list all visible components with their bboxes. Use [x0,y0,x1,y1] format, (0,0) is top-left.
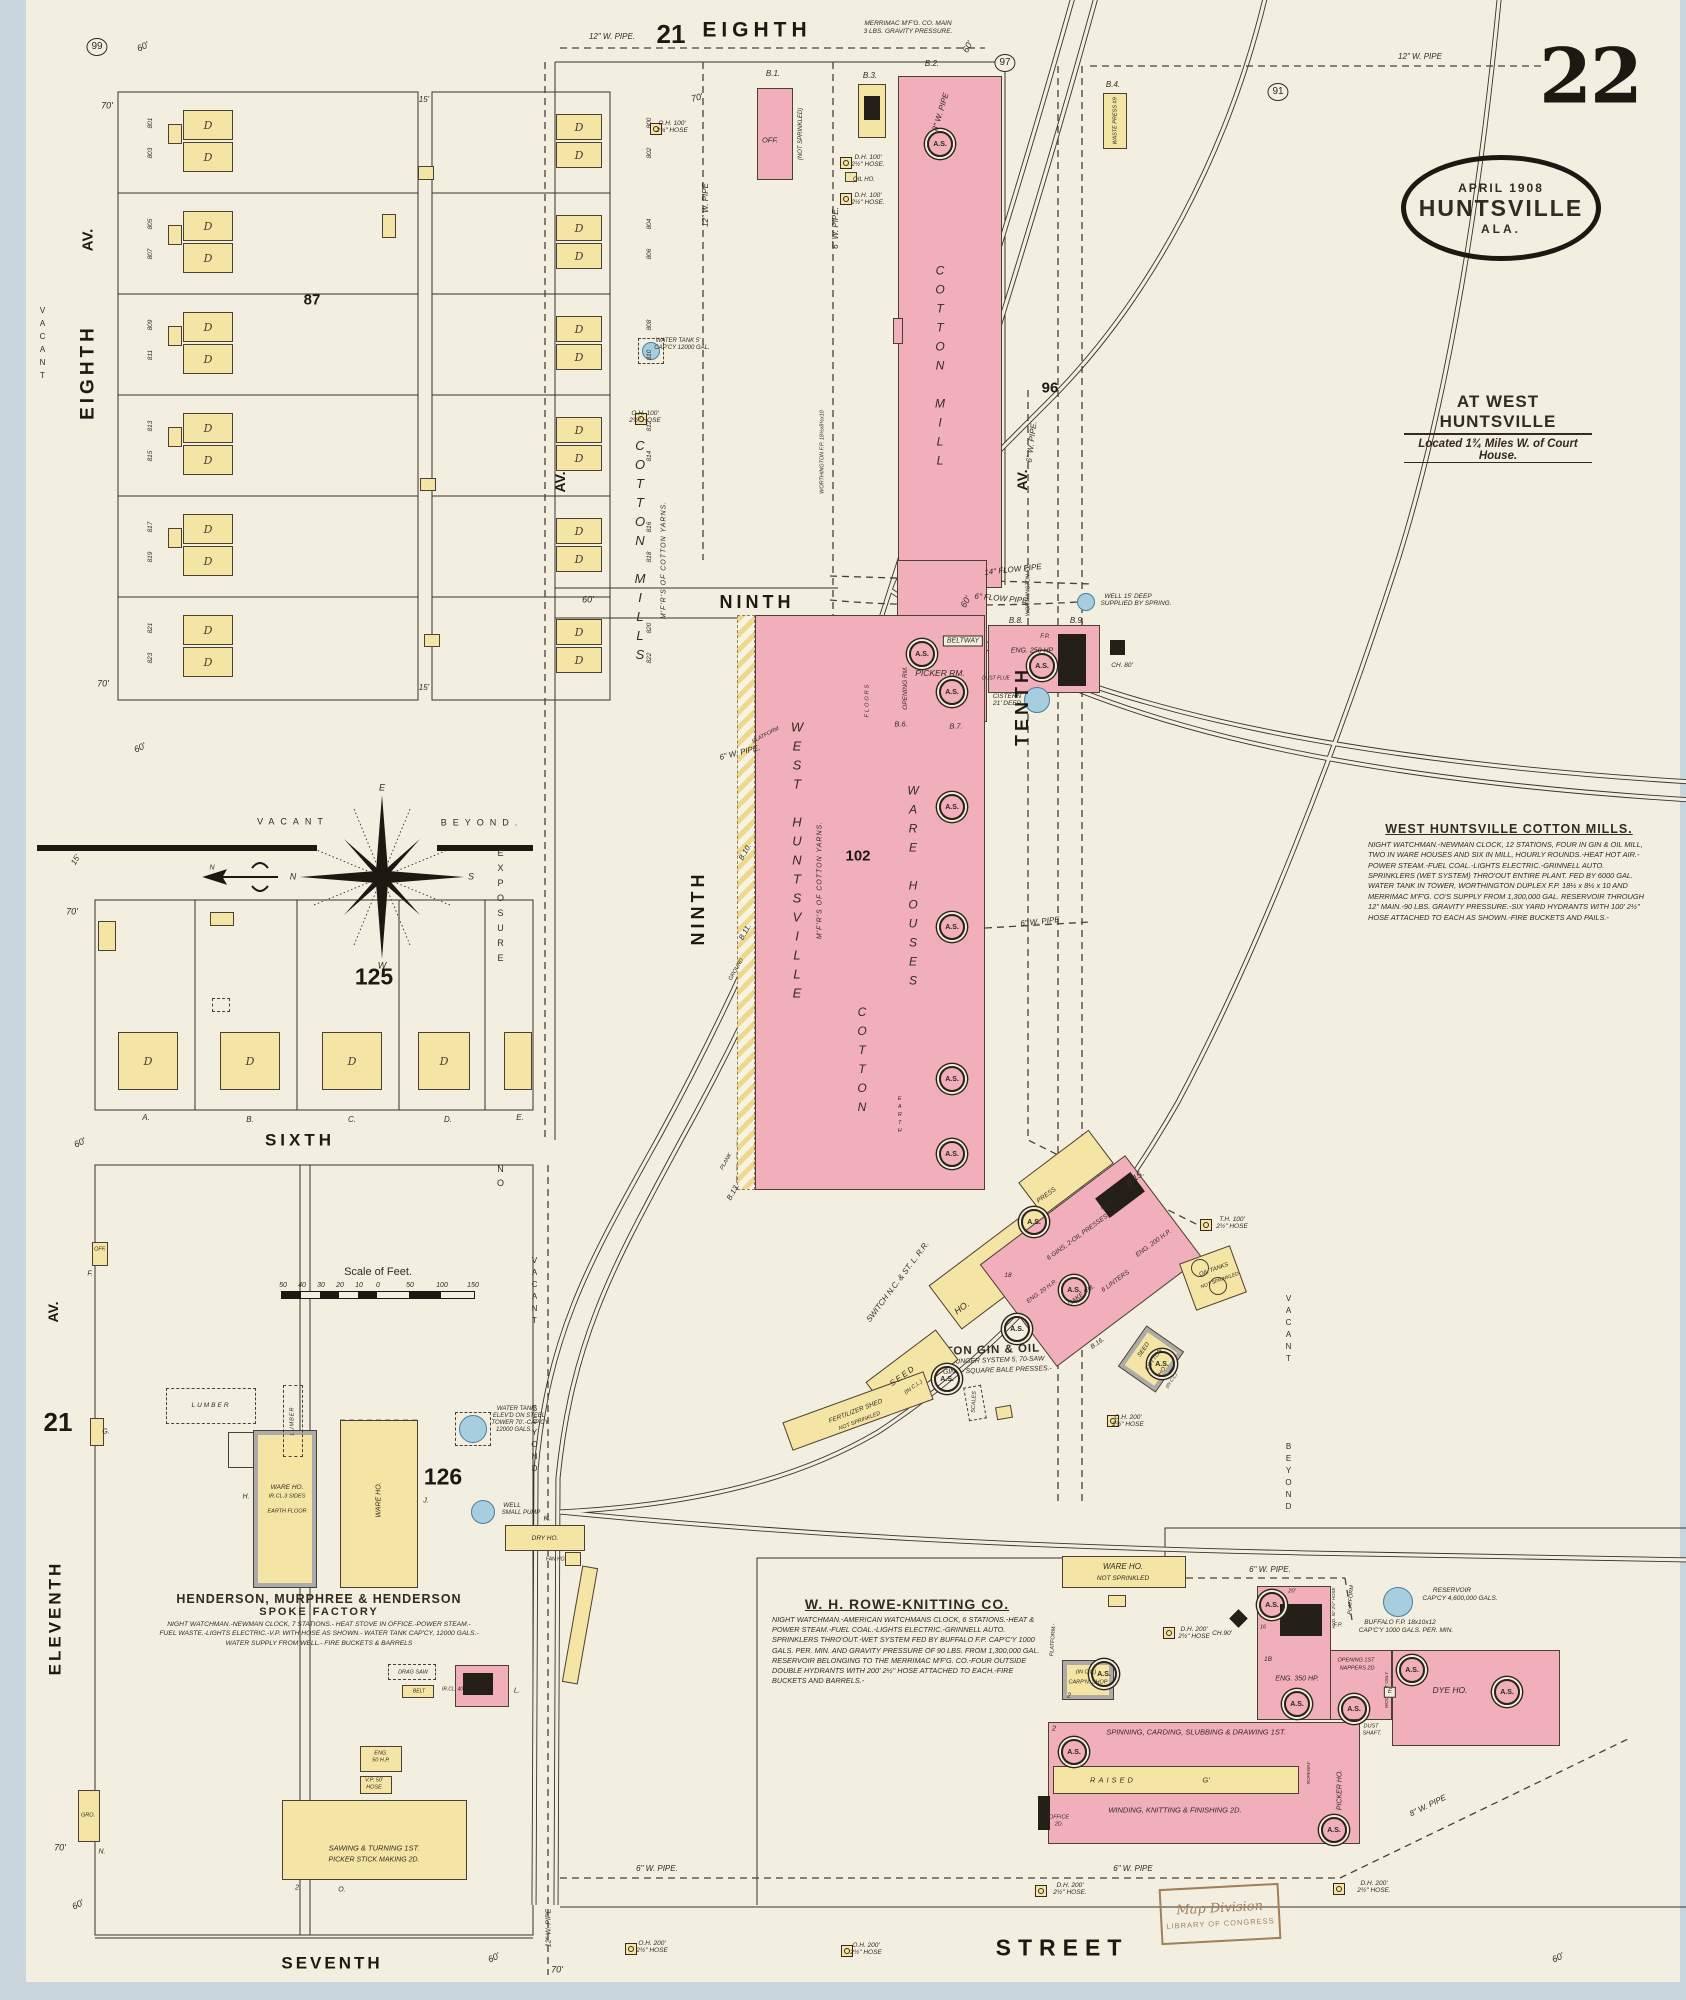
map-label: WARE HO. [376,1482,383,1517]
map-label: CH. 80' [1111,663,1132,670]
map-label: OPENING RM. [903,666,910,710]
note-henderson-body: NIGHT WATCHMAN.-NEWMAN CLOCK, 7 STATIONS… [158,1620,480,1648]
building: D [556,142,602,168]
map-label: WORTHINGTON F.P. [1026,564,1032,616]
stamp-line2: LIBRARY OF CONGRESS [1166,1916,1275,1931]
map-label: SPINNING, CARDING, SLUBBING & DRAWING 1S… [1106,1728,1286,1736]
map-label: 3 LBS. GRAVITY PRESSURE. [864,29,953,36]
map-label: CAP'C'Y 1000 GALS. PER. MIN. [1359,1628,1453,1635]
map-label: WATER TANK [497,1406,535,1412]
building [418,166,434,180]
map-label: BUFFALO F.P. 18x10x12 [1364,1620,1436,1627]
note-rowe-title: W. H. ROWE-KNITTING CO. [772,1596,1042,1612]
building: D [322,1032,382,1090]
scale-tick: 0 [376,1282,380,1289]
map-label: WASTE PRESS #9 [1113,97,1119,144]
building-label: D [575,626,584,639]
map-label: COTTON MILL [934,264,946,473]
building [212,998,230,1012]
title-oval: APRIL 1908 HUNTSVILLE ALA. [1401,155,1601,261]
map-label: B.3. [863,72,877,80]
map-label: WORTHINGTON F.P. 18½x8½x10 [820,410,826,494]
library-stamp: Map Division LIBRARY OF CONGRESS [1159,1883,1282,1945]
map-label: SMALL PUMP [502,1510,541,1516]
building [168,528,182,548]
map-label: 802 [647,148,654,159]
location-line1: AT WEST HUNTSVILLE [1404,392,1592,435]
map-label: AV. [1015,469,1029,490]
building: D [183,546,233,576]
map-label: B.8. [1009,617,1023,625]
scale-tick: 50 [279,1282,287,1289]
map-label: VACANT [257,818,329,827]
building-label: D [575,222,584,235]
building [420,478,436,491]
map-label: S [468,873,474,882]
map-label: OPENING 1ST [1338,1658,1375,1664]
map-label: G. [102,1429,109,1436]
map-label: B.9. [1070,617,1084,625]
map-label: W [378,962,387,971]
building: D [183,312,233,342]
map-label: 21 [44,1409,73,1435]
map-label: DYE HO. [1433,1686,1468,1695]
fence-bar [37,845,317,851]
map-label: B.2. [925,60,939,68]
scale-tick: 30 [317,1282,325,1289]
scale-tick: 100 [436,1282,448,1289]
building: D [556,647,602,673]
hydrant-symbol [1333,1883,1345,1895]
map-label: ELEV'D ON STEEL [493,1413,545,1419]
map-label: 2½" HOSE [636,1948,668,1955]
building-label: D [575,323,584,336]
automatic-sprinkler-symbol: A.S. [909,641,935,667]
map-label: WELL [503,1503,521,1510]
map-label: 816 [647,522,654,533]
building [1062,1556,1186,1588]
building-label: D [575,121,584,134]
map-label: 97 [994,54,1015,72]
map-label: 2½" HOSE. [851,162,884,169]
building: D [183,243,233,273]
map-label: L. [514,1686,520,1694]
map-label: E [1384,1687,1396,1698]
building: D [556,114,602,140]
map-label: BEYOND [1284,1442,1292,1514]
automatic-sprinkler-symbol: A.S. [1341,1696,1367,1722]
scale-bar: Scale of Feet. 50 40 30 20 10 0 50 100 1… [281,1266,475,1299]
building [995,1405,1013,1421]
scale-bar-title: Scale of Feet. [281,1266,475,1278]
map-label: 805 [148,219,155,230]
building: D [118,1032,178,1090]
scale-bar-ticks: 50 40 30 20 10 0 50 100 150 [281,1282,475,1291]
map-label: 2 [1052,1724,1056,1732]
note-henderson-subtitle: SPOKE FACTORY [158,1606,480,1618]
building-label: D [204,252,213,265]
map-label: 102 [845,849,870,864]
note-rowe-body: NIGHT WATCHMAN.-AMERICAN WATCHMANS CLOCK… [772,1615,1042,1686]
map-label: NAPPERS 2D [1340,1666,1375,1672]
title-city: HUNTSVILLE [1419,195,1583,222]
building: D [183,514,233,544]
map-label: 6" W. PIPE [1113,1865,1152,1873]
map-label: CARP'N. SHOP [1069,1680,1108,1686]
map-label: MERRIMAC M'F'G. CO. MAIN [864,21,951,28]
building-label: D [440,1055,449,1068]
automatic-sprinkler-symbol: A.S. [1061,1739,1087,1765]
map-label: 12" W. PIPE [1398,53,1442,61]
map-label: COTTON [856,1005,868,1119]
map-label: OFF. [94,1247,106,1253]
map-label: EXPOSURE [496,848,505,968]
building: D [183,211,233,241]
building-label: D [204,624,213,637]
map-label: ENG. 250 HP [1011,648,1053,655]
scale-tick: 150 [467,1282,479,1289]
map-label: F.P. [1040,634,1049,640]
map-label: F. [87,1271,92,1278]
map-label: AV. [46,1301,60,1322]
automatic-sprinkler-symbol: A.S. [1399,1657,1425,1683]
map-label: 817 [148,522,155,533]
building-label: D [246,1055,255,1068]
map-label: DUST [1364,1724,1379,1730]
map-label: AV. [81,229,96,252]
map-label: IR.CL. 40' [442,1688,464,1693]
map-label: 2½" HOSE. [1357,1888,1390,1895]
map-label: RESERVOIR [1433,1588,1471,1595]
building [1280,1604,1322,1636]
map-label: (IN C.L.) [1076,1670,1097,1676]
building [504,1032,532,1090]
map-label: C. [348,1116,356,1124]
map-label: VACANT [1284,1294,1292,1366]
building [737,615,755,1190]
building-label: D [204,454,213,467]
map-label: HYD. 50' 2½" HOSE [1332,1588,1337,1629]
building: D [556,445,602,471]
map-label: 810 [647,350,654,361]
map-label: ENG. [374,1751,387,1757]
hydrant-symbol [625,1943,637,1955]
map-label: 2 [1067,1693,1071,1700]
map-label: IR.CL.3 SIDES [269,1494,306,1500]
automatic-sprinkler-symbol: A.S. [1029,653,1055,679]
map-label: 16 [1260,1625,1266,1631]
building-label: D [575,424,584,437]
note-cotton-mills-title: WEST HUNTSVILLE COTTON MILLS. [1368,822,1650,836]
map-label: B. [246,1116,254,1124]
building-label: D [575,452,584,465]
building [898,76,1002,588]
map-label: E [379,784,385,793]
map-label: AV. [553,471,567,492]
map-label: PICKER STICK MAKING 2D. [328,1857,419,1864]
map-label: 809 [148,320,155,331]
map-label: B.6. [894,720,907,728]
map-label: RAISED [1090,1776,1136,1784]
map-label: NINTH [689,871,707,946]
building-label: D [204,151,213,164]
automatic-sprinkler-symbol: A.S. [1284,1691,1310,1717]
map-label: 12" W. PIPE. [589,33,635,41]
building [424,634,440,647]
map-label: SHAFT. [1362,1731,1381,1737]
map-label: EIGHTH [79,324,98,420]
building-label: D [575,553,584,566]
map-label: LUMBER [290,1407,296,1436]
map-label: 815 [148,451,155,462]
map-label: EARTH FLOOR [267,1509,306,1515]
building [1108,1595,1126,1607]
map-label: 21 [657,21,686,47]
hydrant-symbol [1200,1219,1212,1231]
map-label: 818 [647,552,654,563]
map-label: EIGHTH [702,20,811,41]
map-label: DUST FLUE [982,677,1010,682]
building: D [220,1032,280,1090]
building [565,1552,581,1566]
building: D [556,243,602,269]
map-label: VACANT [530,1256,538,1328]
building: D [556,546,602,572]
map-label: V.P. 50' [365,1778,383,1784]
railroad-tracks [534,0,1686,1905]
location-line2: Located 1¾ Miles W. of Court House. [1404,438,1592,463]
sheet-number: 22 [1539,32,1641,121]
map-label: 2D. [1055,1822,1064,1828]
map-label: 812 [647,421,654,432]
map-label: 2. [295,1885,301,1892]
fence-bar [437,845,533,851]
building-label: D [348,1055,357,1068]
map-label: ELEVENTH [47,1561,64,1676]
hydrant-symbol [1035,1885,1047,1897]
map-label: 811 [148,350,155,360]
building [228,1432,254,1468]
scale-bar-rule [281,1291,475,1299]
note-henderson-title: HENDERSON, MURPHREE & HENDERSON [158,1592,480,1606]
water-feature [471,1500,495,1524]
hydrant-symbol [1163,1627,1175,1639]
map-label: WARE HO. [1103,1563,1143,1571]
map-label: 803 [148,148,155,159]
map-label: 70' [551,1966,563,1975]
map-label: 126 [424,1466,462,1489]
map-label: 12000 GALS. [496,1427,532,1433]
building [864,96,880,120]
automatic-sprinkler-symbol: A.S. [1494,1679,1520,1705]
note-cotton-mills-body: NIGHT WATCHMAN.-NEWMAN CLOCK, 12 STATION… [1368,840,1650,923]
map-label: D. [444,1116,452,1124]
map-label: DRY HO. [532,1536,559,1543]
location-caption: AT WEST HUNTSVILLE Located 1¾ Miles W. o… [1404,392,1592,463]
building: D [183,413,233,443]
water-feature [459,1415,487,1443]
building-label: D [204,523,213,536]
hydrant-symbol [840,193,852,205]
scale-tick: 50 [406,1282,414,1289]
map-label: 821 [148,623,155,634]
north-pointer [204,863,278,891]
map-label: M'F'R'S OF COTTON YARNS. [661,501,668,619]
building-label: D [575,149,584,162]
building [893,318,903,344]
automatic-sprinkler-symbol: A.S. [939,1141,965,1167]
map-label: ROPEWAY [1307,1762,1312,1785]
title-state: ALA. [1481,222,1521,236]
map-label: 15' [419,96,429,104]
map-label: NOT SPRINKLED [1097,1576,1149,1583]
building-label: D [204,555,213,568]
building: D [183,142,233,172]
building [1058,634,1086,686]
building [98,921,116,951]
map-label: 70' [66,908,78,917]
map-label: 800 [647,118,654,129]
map-label: 60' [582,596,594,605]
map-label: SCALES [972,1391,979,1413]
map-label: N [290,873,297,882]
map-label: 6" W. PIPE. [636,1865,678,1873]
building: D [183,615,233,645]
map-label: NO [496,1164,505,1192]
map-label: N. [99,1849,106,1856]
building-label: D [575,525,584,538]
building: D [418,1032,470,1090]
map-label: WEST HUNTSVILLE [791,720,804,1005]
building [168,124,182,144]
scale-tick: 20 [336,1282,344,1289]
map-label: VACANT [38,306,46,384]
map-label: G' [1202,1776,1209,1784]
map-label: 91 [1267,83,1288,101]
sanborn-map-sheet: 22 APRIL 1908 HUNTSVILLE ALA. AT WEST HU… [0,0,1686,2000]
map-label: TOWER 70'.-CAP'CY [491,1420,548,1426]
map-label: EARTH [896,1096,902,1136]
water-feature [1077,593,1095,611]
map-label: 70' [97,680,109,689]
map-label: O. [338,1887,345,1894]
automatic-sprinkler-symbol: A.S. [1004,1316,1030,1342]
automatic-sprinkler-symbol: A.S. [939,914,965,940]
building [1038,1796,1050,1830]
map-label: 2½" HOSE [1112,1422,1144,1429]
building: D [556,344,602,370]
map-label: 808 [647,320,654,331]
map-label: 2½" HOSE [1216,1224,1248,1231]
building: D [183,344,233,374]
map-label: 813 [148,421,155,432]
building [168,326,182,346]
map-label: STREET [996,1937,1129,1960]
automatic-sprinkler-symbol: A.S. [1021,1209,1047,1235]
map-label: 819 [148,552,155,563]
map-label: 2½" HOSE [1178,1634,1210,1641]
map-label: COTTON MILLS [634,438,647,666]
automatic-sprinkler-symbol: A.S. [939,794,965,820]
map-label: 801 [148,118,155,129]
note-rowe-knitting: W. H. ROWE-KNITTING CO. NIGHT WATCHMAN.-… [772,1596,1042,1686]
automatic-sprinkler-symbol: A.S. [934,1366,960,1392]
building-label: D [575,250,584,263]
map-label: 70' [54,1844,66,1853]
map-label: LUMBER [191,1403,230,1410]
map-label: B.7. [949,722,962,730]
map-label: CAP'CY 12000 GAL. [654,345,709,351]
building: D [556,215,602,241]
map-label: OIL HO. [853,177,875,183]
map-label: NINTH [720,593,795,611]
map-label: 6" W. PIPE. [1249,1566,1291,1574]
map-label: N [209,865,214,872]
map-label: 820 [647,623,654,634]
scale-tick: 40 [298,1282,306,1289]
map-label: 1B [1264,1657,1272,1664]
map-label: FAN HO. [546,1558,566,1563]
building-label: D [204,321,213,334]
building: D [556,417,602,443]
map-label: 20' [1288,1589,1295,1595]
automatic-sprinkler-symbol: A.S. [939,1066,965,1092]
map-label: BEYOND. [441,819,524,828]
building-label: D [204,656,213,669]
building: D [183,445,233,475]
building: D [183,110,233,140]
map-label: 50 H.P. [372,1758,390,1764]
map-label: SAWING & TURNING 1ST. [329,1844,420,1852]
automatic-sprinkler-symbol: A.S. [939,679,965,705]
map-label: WINDING, KNITTING & FINISHING 2D. [1108,1806,1241,1814]
building: D [556,619,602,645]
map-label: H. [243,1494,250,1501]
map-label: 814 [647,451,654,462]
map-label: 87 [304,293,321,308]
map-label: B.1. [766,70,780,78]
map-label: CAP'CY 4,600,000 GALS. [1422,1596,1497,1603]
building [210,912,234,926]
building-label: D [144,1055,153,1068]
map-label: 6" W. PIPE. [832,207,840,249]
building-label: D [204,422,213,435]
map-label: WATER TANK 5' [656,338,700,344]
building [382,214,396,238]
automatic-sprinkler-symbol: A.S. [927,131,953,157]
note-cotton-mills: WEST HUNTSVILLE COTTON MILLS. NIGHT WATC… [1368,822,1650,923]
building: D [556,316,602,342]
map-label: 15' [419,684,429,692]
building-label: D [204,353,213,366]
map-label: ENG. 350 HP. [1275,1676,1318,1683]
note-henderson: HENDERSON, MURPHREE & HENDERSON SPOKE FA… [158,1592,480,1648]
building [757,88,793,180]
building-label: D [204,220,213,233]
map-label: (NOT SPRINKLED) [798,108,804,160]
building [463,1673,493,1695]
map-label: 21' DEEP [993,701,1021,708]
map-label: 12" W. PIPE [702,183,710,227]
map-label: 12" W. PIPE [546,1909,553,1947]
map-label: B.4. [1106,81,1120,89]
map-label: WARE HO. [271,1485,304,1492]
water-feature [1383,1587,1413,1617]
map-label: SIXTH [265,1132,335,1149]
automatic-sprinkler-symbol: A.S. [1321,1817,1347,1843]
building-label: D [575,654,584,667]
map-label: 804 [647,219,654,230]
